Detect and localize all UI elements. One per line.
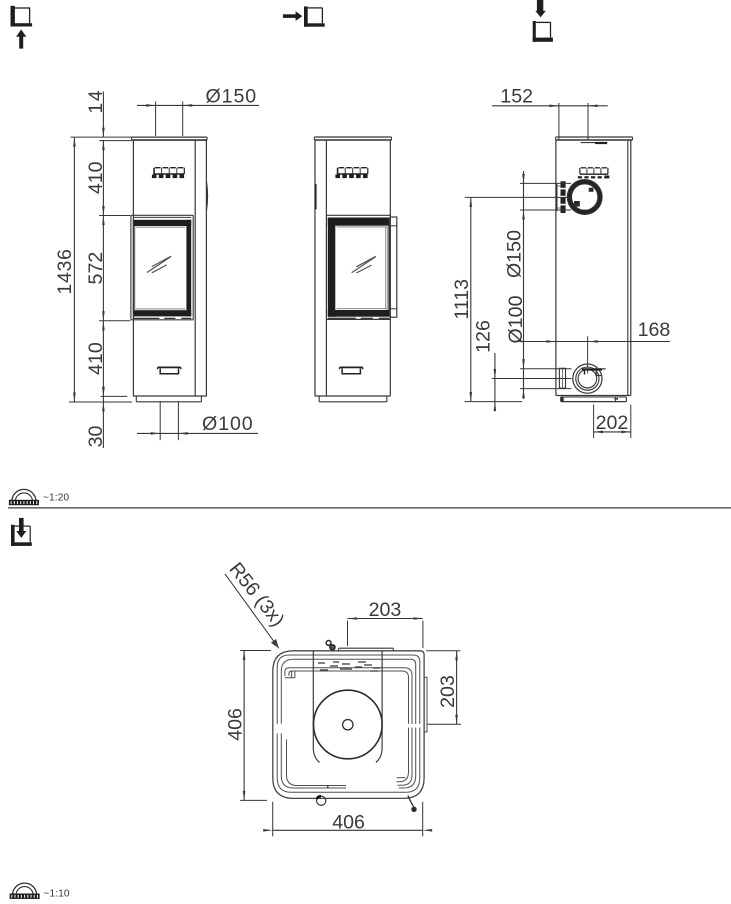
svg-text:126: 126 [473, 320, 495, 353]
svg-text:Ø100: Ø100 [202, 413, 254, 435]
svg-text:30: 30 [85, 426, 107, 448]
svg-text:203: 203 [437, 675, 459, 708]
svg-text:R56 (3x): R56 (3x) [225, 558, 289, 631]
svg-text:406: 406 [224, 708, 246, 741]
svg-text:152: 152 [500, 86, 533, 108]
svg-text:410: 410 [85, 342, 107, 375]
svg-text:406: 406 [332, 811, 365, 833]
svg-text:202: 202 [596, 412, 629, 434]
svg-text:~1:20: ~1:20 [43, 493, 69, 504]
svg-text:410: 410 [85, 161, 107, 194]
svg-text:Ø100: Ø100 [505, 295, 527, 343]
svg-text:1113: 1113 [451, 279, 473, 320]
svg-text:1436: 1436 [54, 249, 76, 295]
svg-text:203: 203 [369, 599, 402, 621]
svg-text:572: 572 [85, 252, 107, 285]
svg-text:~1:10: ~1:10 [44, 888, 70, 899]
svg-text:Ø150: Ø150 [206, 86, 258, 108]
svg-text:168: 168 [638, 319, 671, 341]
svg-text:Ø150: Ø150 [504, 230, 526, 278]
svg-text:14: 14 [85, 89, 107, 114]
